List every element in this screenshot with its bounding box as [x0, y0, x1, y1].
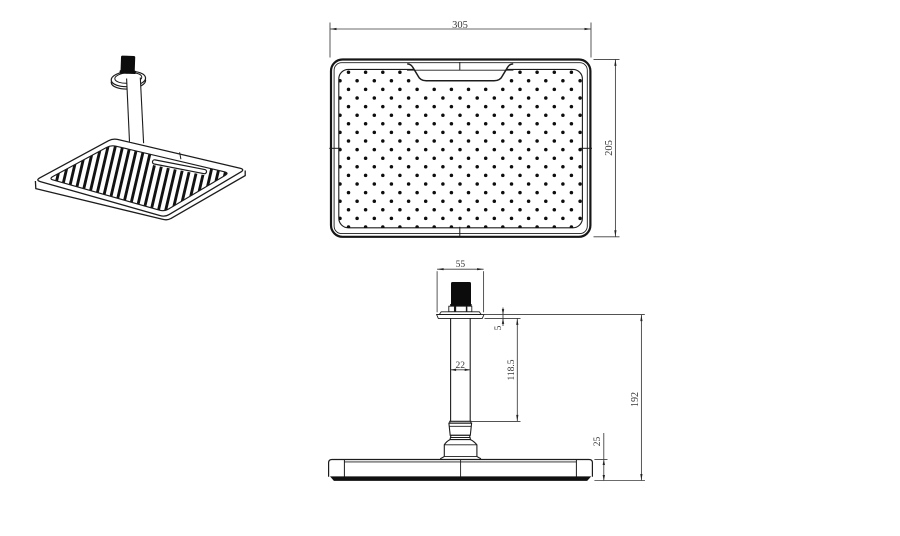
svg-text:55: 55 [456, 260, 466, 270]
svg-text:22: 22 [456, 361, 466, 371]
svg-text:5: 5 [494, 325, 504, 330]
svg-text:305: 305 [452, 20, 468, 31]
svg-text:205: 205 [604, 140, 615, 156]
svg-text:118.5: 118.5 [507, 359, 517, 380]
svg-text:25: 25 [593, 437, 603, 447]
svg-text:192: 192 [630, 392, 641, 407]
